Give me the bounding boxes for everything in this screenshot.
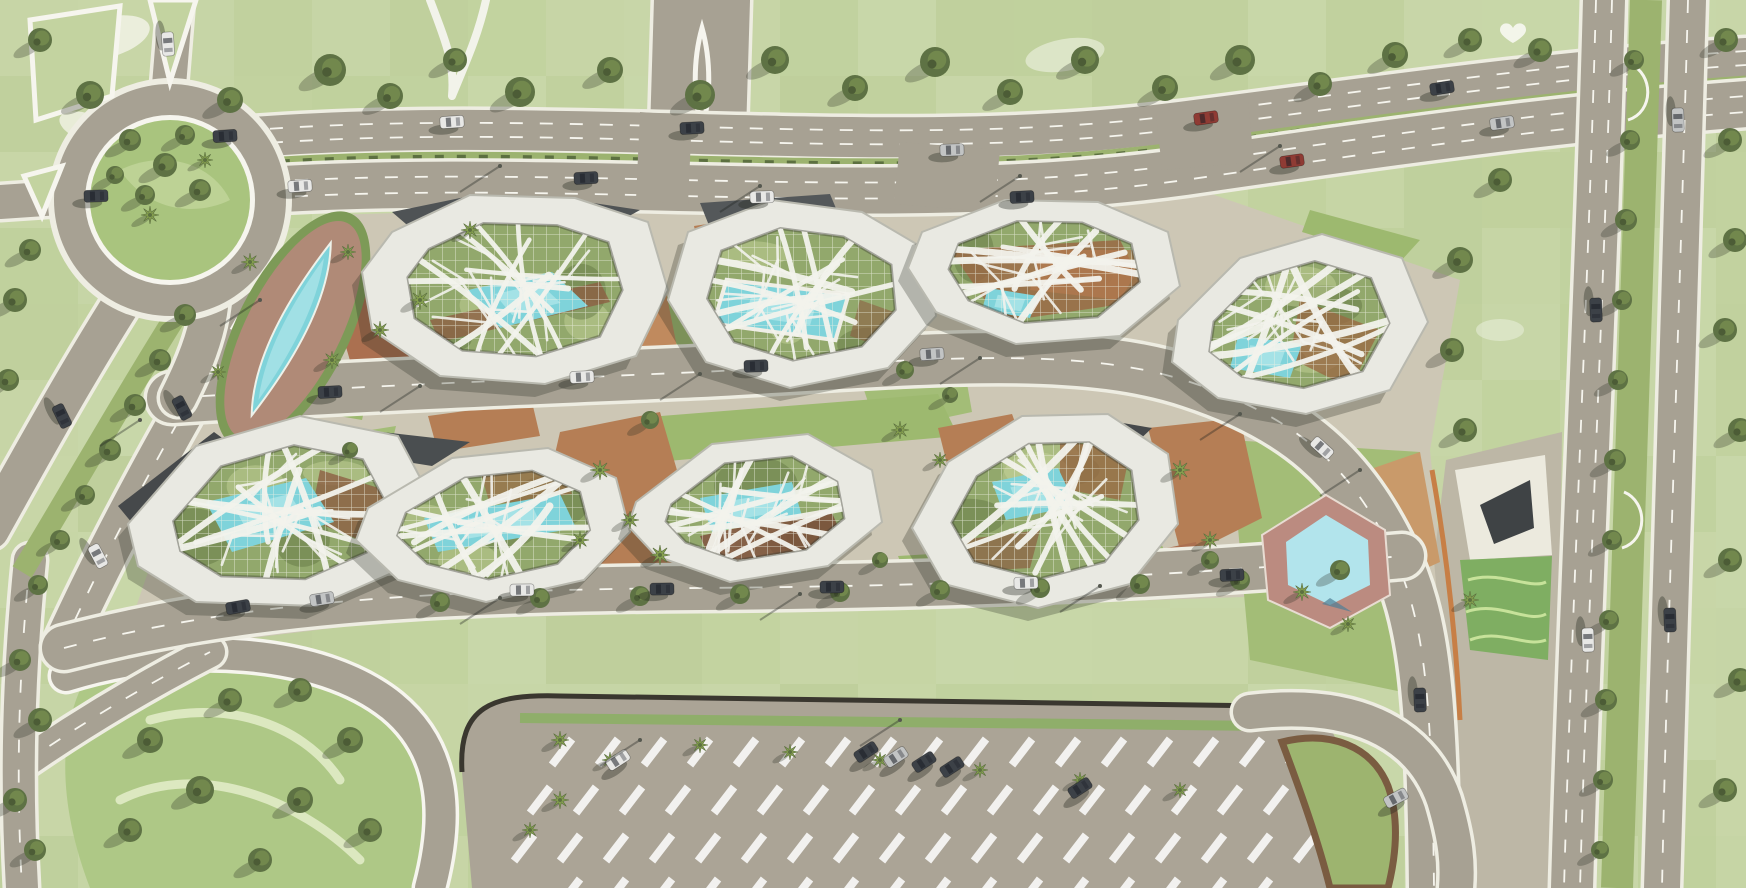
- tree-canopy-dark: [1620, 219, 1627, 226]
- light-pole: [1278, 144, 1282, 148]
- lawn-patch: [702, 608, 780, 684]
- car-windshield: [1016, 192, 1021, 201]
- palm-trunk: [330, 358, 334, 362]
- lawn-patch: [1092, 608, 1170, 684]
- car-body: [570, 370, 595, 383]
- tree-canopy-dark: [1628, 59, 1634, 65]
- car-rear-window: [100, 192, 104, 201]
- lawn-patch: [1716, 456, 1746, 532]
- lawn-patch: [468, 608, 546, 684]
- lawn-patch: [546, 608, 624, 684]
- tree-canopy-dark: [29, 849, 36, 856]
- tree-canopy-dark: [1723, 138, 1730, 145]
- tree-canopy-dark: [899, 369, 904, 374]
- tree-canopy-dark: [1733, 428, 1740, 435]
- tree-canopy-dark: [1612, 379, 1618, 385]
- tree-canopy-dark: [1134, 583, 1140, 589]
- car-windshield: [163, 38, 173, 44]
- light-pole: [798, 592, 802, 596]
- car-rear-window: [1592, 314, 1601, 318]
- parking-lot: [462, 696, 1352, 888]
- car-body: [1672, 108, 1685, 132]
- tree-canopy-dark: [343, 738, 351, 746]
- car-body: [940, 144, 964, 157]
- palm-trunk: [148, 213, 152, 217]
- lawn-patch: [234, 0, 312, 76]
- tree-canopy-dark: [33, 38, 40, 45]
- palm-trunk: [628, 518, 632, 522]
- car-rear-window: [760, 362, 764, 371]
- car-rear-window: [1584, 644, 1593, 648]
- light-pole: [1098, 584, 1102, 588]
- car-rear-window: [334, 387, 338, 396]
- tree-canopy-dark: [109, 174, 114, 179]
- palm-trunk: [378, 328, 382, 332]
- car-rear-window: [1674, 124, 1683, 128]
- tree-canopy-dark: [1606, 539, 1612, 545]
- tree-canopy-dark: [448, 58, 455, 65]
- car-body: [1414, 688, 1427, 712]
- car-rear-window: [836, 583, 840, 591]
- light-pole: [698, 372, 702, 376]
- palm-trunk: [558, 798, 562, 802]
- car-rear-window: [304, 181, 309, 190]
- car-rear-window: [1236, 570, 1240, 579]
- palm-trunk: [1346, 622, 1350, 626]
- aerial-masterplan-rendering: [0, 0, 1746, 888]
- tree-canopy-dark: [179, 134, 185, 140]
- car-body: [510, 584, 534, 596]
- tree-canopy-dark: [1624, 139, 1630, 145]
- car-windshield: [1583, 634, 1592, 639]
- tree-canopy-dark: [293, 798, 301, 806]
- tree-canopy-dark: [1718, 328, 1725, 335]
- car-rear-window: [456, 117, 461, 126]
- light-pole: [758, 184, 762, 188]
- tree-canopy-dark: [124, 139, 131, 146]
- car-windshield: [686, 123, 691, 132]
- light-pole: [898, 718, 902, 722]
- palm-trunk: [346, 250, 350, 254]
- tree-canopy-dark: [179, 314, 186, 321]
- car-windshield: [90, 191, 95, 200]
- car-windshield: [580, 173, 585, 182]
- car-rear-window: [666, 585, 670, 593]
- lawn-patch: [1716, 304, 1746, 380]
- light-pole: [258, 298, 262, 302]
- light-pole: [498, 596, 502, 600]
- tree-canopy-dark: [139, 194, 145, 200]
- lawn-patch: [1716, 836, 1746, 888]
- palm-trunk: [418, 298, 422, 302]
- tree-canopy-dark: [8, 798, 15, 805]
- car-rear-window: [766, 193, 770, 202]
- tree-canopy-dark: [223, 98, 231, 106]
- car-rear-window: [1416, 704, 1425, 708]
- car-rear-window: [696, 123, 700, 132]
- tree-canopy-dark: [1388, 53, 1396, 61]
- tree-canopy-dark: [1334, 569, 1340, 575]
- car-windshield: [1673, 114, 1682, 119]
- tree-canopy-dark: [129, 404, 136, 411]
- tree-canopy-dark: [1728, 238, 1735, 245]
- car-windshield: [324, 387, 329, 396]
- tree-canopy-dark: [1233, 58, 1242, 67]
- lawn-patch: [936, 608, 1014, 684]
- palm-trunk: [1300, 590, 1304, 594]
- tree-canopy-dark: [345, 450, 350, 455]
- tree-canopy-dark: [79, 494, 85, 500]
- car-body: [820, 581, 844, 593]
- tree-canopy-dark: [1597, 779, 1603, 785]
- car-body: [920, 347, 945, 361]
- tree-canopy-dark: [928, 60, 937, 69]
- tree-canopy-dark: [1493, 178, 1500, 185]
- tree-canopy-dark: [1616, 299, 1622, 305]
- car-rear-window: [956, 146, 960, 155]
- car-windshield: [516, 585, 521, 594]
- light-pole: [138, 418, 142, 422]
- car-windshield: [576, 372, 581, 381]
- palm-trunk: [468, 228, 472, 232]
- tree-canopy-dark: [945, 395, 950, 400]
- tree-canopy-dark: [1533, 48, 1540, 55]
- tree-canopy-dark: [1204, 559, 1209, 564]
- car-windshield: [294, 181, 300, 191]
- light-pole: [1018, 174, 1022, 178]
- palm-trunk: [788, 750, 792, 754]
- tree-canopy-dark: [33, 718, 40, 725]
- car-body: [744, 360, 768, 373]
- palm-trunk: [1178, 468, 1182, 472]
- tree-canopy-dark: [104, 449, 111, 456]
- tree-canopy-dark: [24, 249, 31, 256]
- palm-trunk: [1468, 598, 1472, 602]
- car-rear-window: [1030, 579, 1034, 588]
- car-windshield: [756, 192, 761, 201]
- car-body: [1014, 577, 1038, 590]
- palm-trunk: [528, 828, 532, 832]
- lawn-patch: [780, 0, 858, 76]
- lawn-patch: [1716, 152, 1746, 228]
- car-body: [288, 179, 313, 193]
- car-body: [318, 385, 343, 398]
- light-pole: [1358, 468, 1362, 472]
- car-rear-window: [229, 131, 234, 140]
- tree-canopy-dark: [8, 298, 15, 305]
- palm-trunk: [203, 158, 207, 162]
- car-rear-window: [1026, 192, 1030, 201]
- car-body: [161, 32, 175, 57]
- palm-trunk: [978, 768, 982, 772]
- tree-canopy-dark: [1594, 849, 1599, 854]
- tree-canopy-dark: [123, 828, 130, 835]
- tree-canopy-dark: [1445, 348, 1452, 355]
- masterplan-canvas: [0, 0, 1746, 888]
- lawn-patch: [858, 608, 936, 684]
- light-pole: [498, 164, 502, 168]
- tree-canopy-dark: [383, 94, 391, 102]
- tree-canopy-dark: [1609, 459, 1616, 466]
- light-pole: [638, 738, 642, 742]
- palm-trunk: [898, 428, 902, 432]
- tree-canopy-dark: [534, 597, 540, 603]
- tree-canopy-dark: [1453, 258, 1461, 266]
- tree-canopy-dark: [363, 828, 370, 835]
- car-windshield: [750, 361, 755, 370]
- lawn-patch: [1170, 608, 1248, 684]
- tree-canopy-dark: [434, 601, 440, 607]
- tree-canopy-dark: [194, 189, 201, 196]
- car-body: [1010, 190, 1035, 203]
- car-rear-window: [936, 349, 941, 358]
- tree-canopy-dark: [1313, 82, 1320, 89]
- car-body: [574, 171, 599, 184]
- palm-trunk: [698, 743, 702, 747]
- tree-canopy-dark: [322, 67, 332, 77]
- tree-canopy-dark: [875, 560, 880, 565]
- tree-canopy-dark: [2, 379, 9, 386]
- lawn-patch: [1482, 228, 1560, 304]
- tree-canopy-dark: [154, 359, 161, 366]
- tree-canopy-dark: [603, 68, 611, 76]
- palm-trunk: [938, 458, 942, 462]
- car-body: [680, 121, 705, 134]
- car-windshield: [219, 131, 225, 141]
- palm-trunk: [878, 758, 882, 762]
- road-east-east-carriageway: [1662, 0, 1688, 888]
- tree-canopy-dark: [513, 90, 522, 99]
- tree-canopy-dark: [734, 593, 740, 599]
- tree-canopy-dark: [1603, 619, 1609, 625]
- car-windshield: [1020, 578, 1025, 587]
- tree-canopy-dark: [848, 86, 856, 94]
- car-rear-window: [526, 586, 530, 594]
- car-body: [1220, 568, 1245, 581]
- car-body: [1590, 298, 1603, 322]
- car-windshield: [1415, 694, 1424, 699]
- palm-trunk: [658, 553, 662, 557]
- palm-trunk: [598, 468, 602, 472]
- tree-canopy-dark: [1463, 38, 1470, 45]
- car-body: [1664, 608, 1677, 632]
- car-windshield: [446, 117, 452, 127]
- palm-trunk: [1178, 788, 1182, 792]
- tree-canopy-dark: [223, 698, 230, 705]
- tree-canopy-dark: [1719, 38, 1726, 45]
- roof-branch-twig: [232, 535, 274, 536]
- car-body: [84, 190, 108, 203]
- car-windshield: [656, 584, 661, 593]
- car-windshield: [1226, 570, 1231, 579]
- tree-canopy-dark: [1600, 699, 1607, 706]
- palm-trunk: [1208, 538, 1212, 542]
- tree-canopy-dark: [934, 589, 940, 595]
- tree-canopy-dark: [644, 419, 649, 424]
- tree-canopy-dark: [1718, 788, 1725, 795]
- roof-branch-twig: [777, 237, 778, 297]
- car-body: [213, 129, 238, 143]
- car-rear-window: [590, 173, 594, 182]
- tree-canopy-dark: [293, 688, 300, 695]
- lawn-patch: [1248, 0, 1326, 76]
- car-rear-window: [1666, 624, 1675, 628]
- sand-patch: [1476, 319, 1524, 341]
- palm-trunk: [578, 538, 582, 542]
- tree-canopy-dark: [54, 539, 60, 545]
- tree-canopy-dark: [32, 584, 38, 590]
- car-body: [650, 583, 674, 595]
- tree-canopy-dark: [1723, 558, 1730, 565]
- tree-canopy-dark: [768, 58, 776, 66]
- car-windshield: [826, 582, 831, 591]
- light-pole: [418, 384, 422, 388]
- tree-canopy-dark: [1458, 428, 1465, 435]
- palm-trunk: [216, 370, 220, 374]
- car-windshield: [946, 145, 951, 154]
- lawn-patch: [1482, 304, 1560, 380]
- light-pole: [1238, 412, 1242, 416]
- palm-trunk: [248, 260, 252, 264]
- tree-canopy-dark: [158, 163, 165, 170]
- tree-canopy-dark: [253, 858, 260, 865]
- tree-canopy-dark: [693, 93, 702, 102]
- lawn-patch: [624, 608, 702, 684]
- car-windshield: [926, 349, 932, 359]
- car-rear-window: [164, 48, 173, 53]
- tree-canopy-dark: [1158, 86, 1166, 94]
- car-windshield: [1591, 304, 1600, 309]
- tree-canopy-dark: [14, 659, 21, 666]
- tree-canopy-dark: [193, 788, 201, 796]
- lawn-patch: [1092, 0, 1170, 76]
- car-body: [750, 191, 774, 204]
- green-glass-roof: [1460, 556, 1552, 660]
- tree-canopy-dark: [1733, 678, 1740, 685]
- tree-canopy-dark: [143, 738, 151, 746]
- roof-branch-twig: [720, 484, 721, 512]
- lawn-patch: [780, 608, 858, 684]
- tree-canopy-dark: [1078, 58, 1086, 66]
- car-body: [1582, 628, 1595, 652]
- light-pole: [978, 356, 982, 360]
- palm-trunk: [558, 738, 562, 742]
- car-body: [440, 115, 465, 129]
- tree-canopy-dark: [83, 93, 91, 101]
- tree-canopy-dark: [1003, 90, 1011, 98]
- car-windshield: [1665, 614, 1674, 619]
- car-rear-window: [586, 372, 590, 381]
